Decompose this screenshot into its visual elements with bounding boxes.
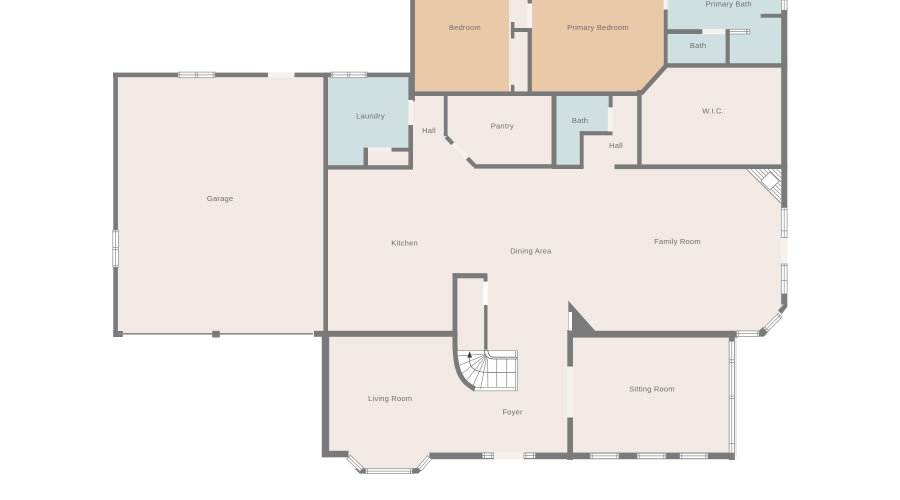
svg-text:Garage: Garage	[207, 194, 233, 203]
svg-text:Bath: Bath	[572, 116, 588, 125]
svg-text:Hall: Hall	[422, 126, 436, 135]
svg-text:Bath: Bath	[690, 41, 706, 50]
svg-text:Hall: Hall	[609, 141, 623, 150]
svg-text:Foyer: Foyer	[502, 408, 523, 417]
svg-text:Primary Bedroom: Primary Bedroom	[567, 23, 629, 32]
svg-text:W.I.C.: W.I.C.	[702, 107, 724, 116]
svg-text:Living Room: Living Room	[368, 394, 412, 403]
svg-text:Family Room: Family Room	[654, 237, 701, 246]
svg-text:Laundry: Laundry	[356, 111, 385, 120]
svg-text:Pantry: Pantry	[491, 122, 514, 131]
svg-text:Primary Bath: Primary Bath	[706, 0, 752, 8]
svg-text:Sitting Room: Sitting Room	[629, 384, 675, 393]
svg-text:Dining Area: Dining Area	[510, 247, 552, 256]
svg-text:Kitchen: Kitchen	[391, 239, 418, 248]
svg-text:Bedroom: Bedroom	[449, 23, 481, 32]
